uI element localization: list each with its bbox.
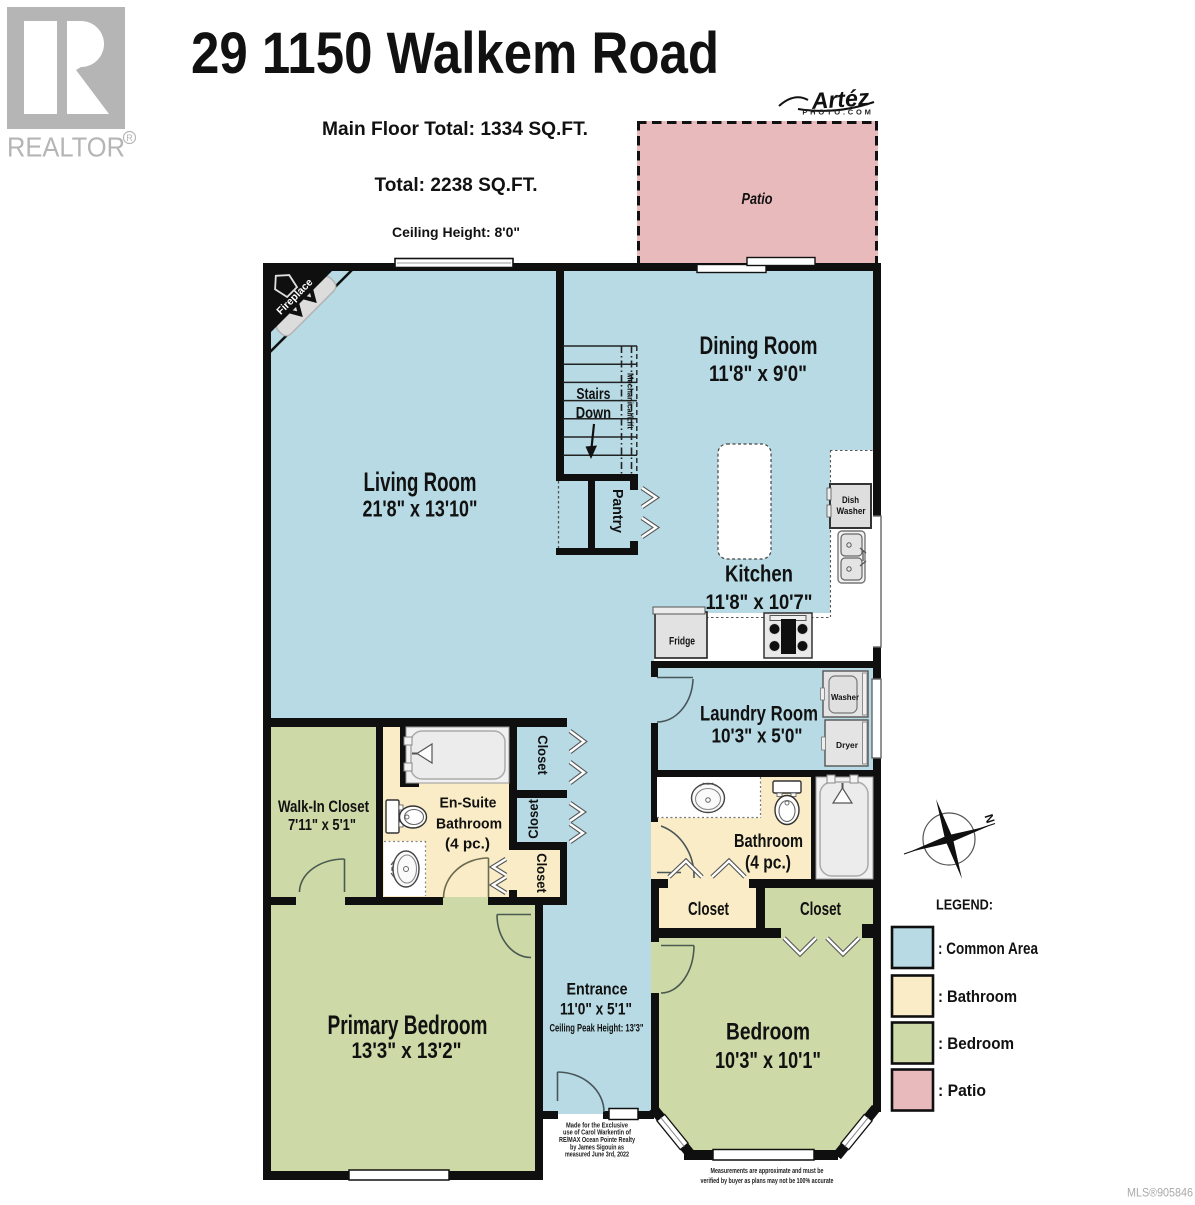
svg-text:Pantry: Pantry (609, 489, 626, 534)
svg-text:En-Suite: En-Suite (440, 794, 497, 811)
svg-text:(4 pc.): (4 pc.) (745, 853, 791, 873)
svg-text:21'8" x 13'10": 21'8" x 13'10" (363, 496, 478, 522)
svg-text:11'8" x 10'7": 11'8" x 10'7" (706, 591, 813, 614)
svg-text:Bathroom: Bathroom (436, 816, 502, 833)
svg-text:Main Floor Total: 1334 SQ.FT.: Main Floor Total: 1334 SQ.FT. (322, 118, 588, 140)
svg-text:Laundry Room: Laundry Room (700, 702, 818, 725)
svg-text:10'3" x 10'1": 10'3" x 10'1" (715, 1047, 821, 1073)
svg-text:Dish: Dish (842, 495, 859, 506)
svg-text:verified by buyer as plans may: verified by buyer as plans may not be 10… (701, 1176, 834, 1185)
svg-text:(4 pc.): (4 pc.) (445, 836, 490, 853)
svg-text:Stairs: Stairs (576, 386, 610, 403)
svg-text:Dining Room: Dining Room (700, 332, 818, 360)
svg-text:Closet: Closet (688, 899, 729, 919)
svg-text:Kitchen: Kitchen (725, 561, 793, 587)
svg-text:: Bathroom: : Bathroom (938, 988, 1017, 1006)
svg-text:Closet: Closet (534, 853, 549, 893)
svg-text:Bedroom: Bedroom (726, 1019, 810, 1046)
svg-text:Washer: Washer (831, 693, 859, 702)
svg-text:Primary Bedroom: Primary Bedroom (328, 1010, 488, 1040)
svg-text:Ceiling Peak Height: 13'3": Ceiling Peak Height: 13'3" (550, 1022, 644, 1034)
svg-text:MLS®905846: MLS®905846 (1127, 1186, 1193, 1200)
svg-text:Closet: Closet (535, 735, 550, 775)
svg-text:Down: Down (576, 405, 611, 422)
svg-text:11'0" x 5'1": 11'0" x 5'1" (560, 999, 632, 1018)
svg-text:29 1150 Walkem Road: 29 1150 Walkem Road (191, 21, 719, 86)
svg-text:: Patio: : Patio (938, 1082, 986, 1100)
svg-text:Closet: Closet (526, 799, 541, 839)
svg-text:LEGEND:: LEGEND: (936, 898, 993, 914)
svg-text:Living Room: Living Room (364, 467, 477, 497)
svg-text:11'8" x 9'0": 11'8" x 9'0" (709, 361, 807, 386)
svg-text:measured June 3rd, 2022: measured June 3rd, 2022 (565, 1150, 629, 1159)
svg-text:PHOTO.COM: PHOTO.COM (802, 108, 873, 117)
svg-text:Total: 2238 SQ.FT.: Total: 2238 SQ.FT. (375, 174, 538, 196)
svg-text:: Bedroom: : Bedroom (938, 1035, 1014, 1053)
svg-text:13'3" x 13'2": 13'3" x 13'2" (352, 1038, 462, 1063)
svg-text:REALTOR: REALTOR (7, 132, 125, 163)
svg-text:Ceiling Height: 8'0": Ceiling Height: 8'0" (392, 224, 520, 240)
svg-text:Washer: Washer (837, 506, 866, 517)
svg-text:Closet: Closet (800, 899, 841, 919)
svg-text:Entrance: Entrance (567, 980, 628, 999)
svg-text:Dryer: Dryer (836, 741, 858, 750)
svg-text:: Common Area: : Common Area (938, 940, 1039, 958)
svg-text:Patio: Patio (742, 191, 773, 208)
svg-text:10'3" x 5'0": 10'3" x 5'0" (712, 726, 803, 748)
svg-text:Mechanical/Lift: Mechanical/Lift (625, 373, 635, 429)
svg-text:7'11" x 5'1": 7'11" x 5'1" (288, 817, 356, 834)
svg-text:Bathroom: Bathroom (734, 831, 803, 851)
svg-text:Measurements are approximate a: Measurements are approximate and must be (711, 1166, 824, 1175)
svg-text:Fridge: Fridge (669, 636, 695, 648)
svg-text:Walk-In Closet: Walk-In Closet (278, 797, 369, 816)
svg-text:R: R (126, 133, 133, 143)
